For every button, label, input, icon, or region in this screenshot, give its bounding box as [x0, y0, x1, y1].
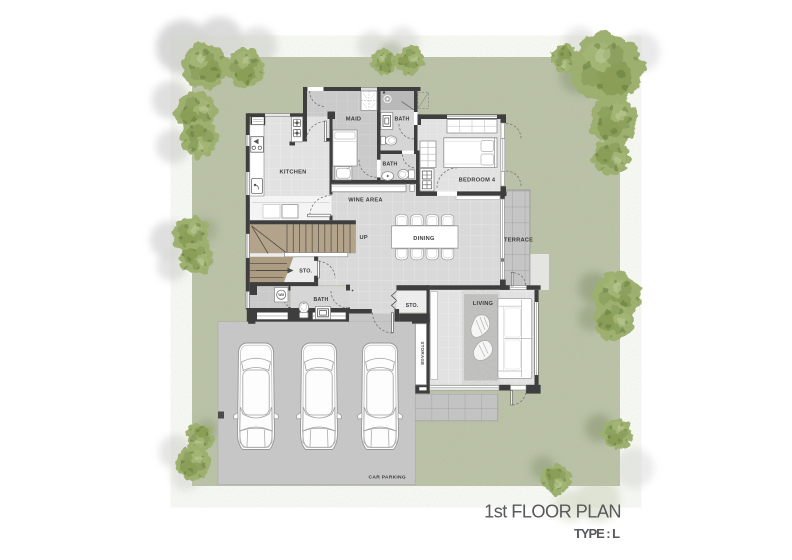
svg-text:BATH: BATH — [395, 116, 410, 122]
svg-text:LIVING: LIVING — [473, 301, 494, 307]
svg-text:STO.: STO. — [406, 303, 419, 309]
svg-text:KITCHEN: KITCHEN — [279, 169, 306, 175]
svg-text:BATH: BATH — [383, 162, 398, 168]
svg-text:1st FLOOR PLAN: 1st FLOOR PLAN — [484, 502, 621, 522]
svg-text:UP: UP — [360, 235, 368, 241]
svg-text:BEDROOM 4: BEDROOM 4 — [459, 177, 496, 183]
svg-text:WINE AREA: WINE AREA — [348, 198, 383, 204]
svg-text:STORAGE: STORAGE — [420, 341, 425, 365]
svg-text:MAID: MAID — [346, 116, 362, 122]
svg-text:STO.: STO. — [299, 269, 312, 275]
svg-text:CAR PARKING: CAR PARKING — [369, 475, 406, 481]
svg-text:BATH: BATH — [314, 297, 329, 303]
svg-text:WM: WM — [278, 293, 284, 297]
svg-text:TERRACE: TERRACE — [504, 237, 533, 243]
svg-text:DINING: DINING — [413, 236, 435, 242]
svg-text:TYPE : L: TYPE : L — [574, 526, 620, 541]
